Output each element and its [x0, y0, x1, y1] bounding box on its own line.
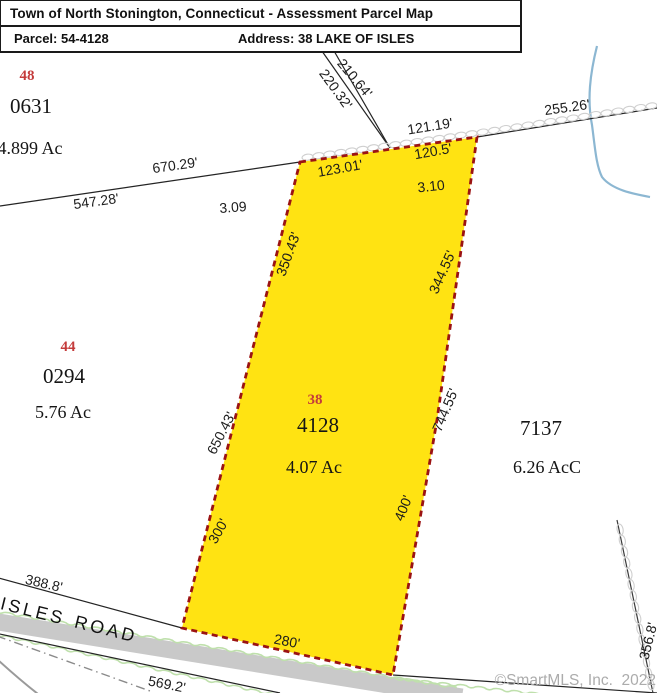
lot-number-38: 38	[308, 392, 323, 408]
dimension-54728: 547.28'	[72, 190, 119, 212]
title-block: Town of North Stonington, Connecticut - …	[0, 0, 522, 53]
boundary-line-northwest	[0, 162, 300, 206]
acreage-407ac: 4.07 Ac	[286, 457, 342, 477]
stream-line	[590, 46, 650, 197]
title-info-row: Parcel: 54-4128 Address: 38 LAKE OF ISLE…	[1, 27, 520, 51]
parcel-id-0631: 0631	[10, 94, 52, 118]
address-label: Address: 38 LAKE OF ISLES	[238, 31, 414, 46]
dimension-3888: 388.8'	[24, 571, 64, 595]
driveway-arc	[0, 660, 38, 693]
acreage-626acc: 6.26 AcC	[513, 457, 581, 477]
parcel-id-4128: 4128	[297, 413, 339, 437]
parcel-map-canvas: 210.64'220.32'255.26'121.19'120.5'123.01…	[0, 0, 657, 693]
dimension-12119: 121.19'	[406, 115, 453, 138]
watermark: ©SmartMLS, Inc. 2022	[495, 672, 656, 690]
parcel-number-label: Parcel: 54-4128	[14, 31, 238, 46]
dimension-67029: 670.29'	[151, 154, 198, 176]
parcel-id-7137: 7137	[520, 416, 562, 440]
dimension-25526: 255.26'	[543, 96, 590, 118]
dimension-5692: 569.2'	[147, 673, 187, 693]
lot-number-44: 44	[61, 339, 77, 355]
boundary-line-north-a	[317, 44, 390, 148]
acreage-4899ac: 4.899 Ac	[0, 138, 63, 158]
dimension-310: 3.10	[417, 177, 446, 196]
acreage-576ac: 5.76 Ac	[35, 402, 91, 422]
dimension-309: 3.09	[219, 198, 248, 216]
parcel-id-0294: 0294	[43, 364, 86, 388]
map-title: Town of North Stonington, Connecticut - …	[1, 1, 520, 27]
subject-parcel-polygon	[182, 137, 477, 675]
parcel-map: 210.64'220.32'255.26'121.19'120.5'123.01…	[0, 0, 657, 693]
stone-wall-north	[302, 102, 657, 161]
lot-number-48: 48	[20, 68, 35, 84]
